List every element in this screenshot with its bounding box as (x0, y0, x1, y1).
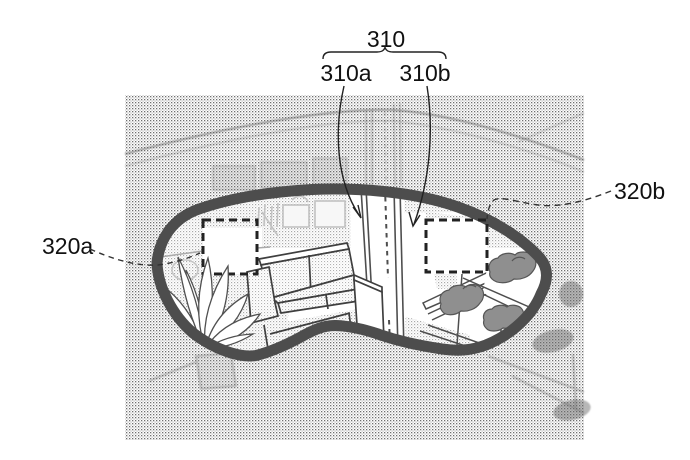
svg-text:310b: 310b (399, 60, 450, 86)
svg-text:310a: 310a (320, 60, 371, 86)
svg-text:320b: 320b (614, 178, 665, 204)
svg-text:320a: 320a (42, 233, 93, 259)
